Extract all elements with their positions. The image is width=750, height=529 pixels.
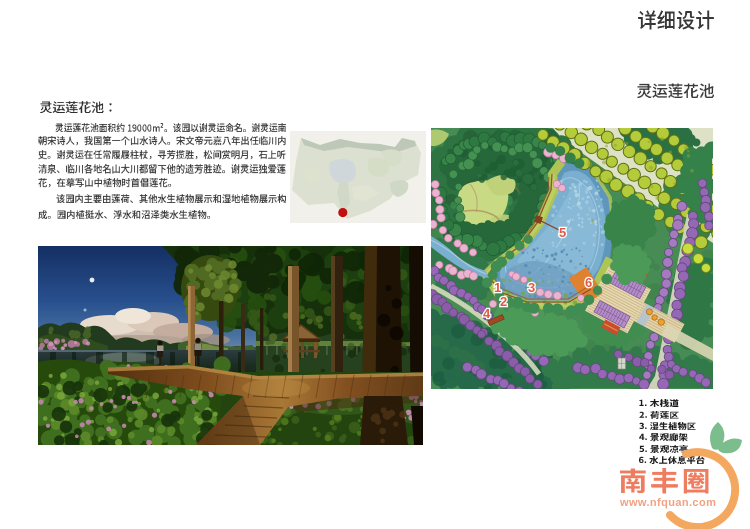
svg-text:5: 5 [559,225,566,240]
svg-text:2: 2 [500,294,507,309]
svg-text:4: 4 [483,306,491,321]
svg-text:3: 3 [528,280,535,295]
svg-text:1: 1 [494,280,501,295]
svg-text:6: 6 [585,275,592,290]
